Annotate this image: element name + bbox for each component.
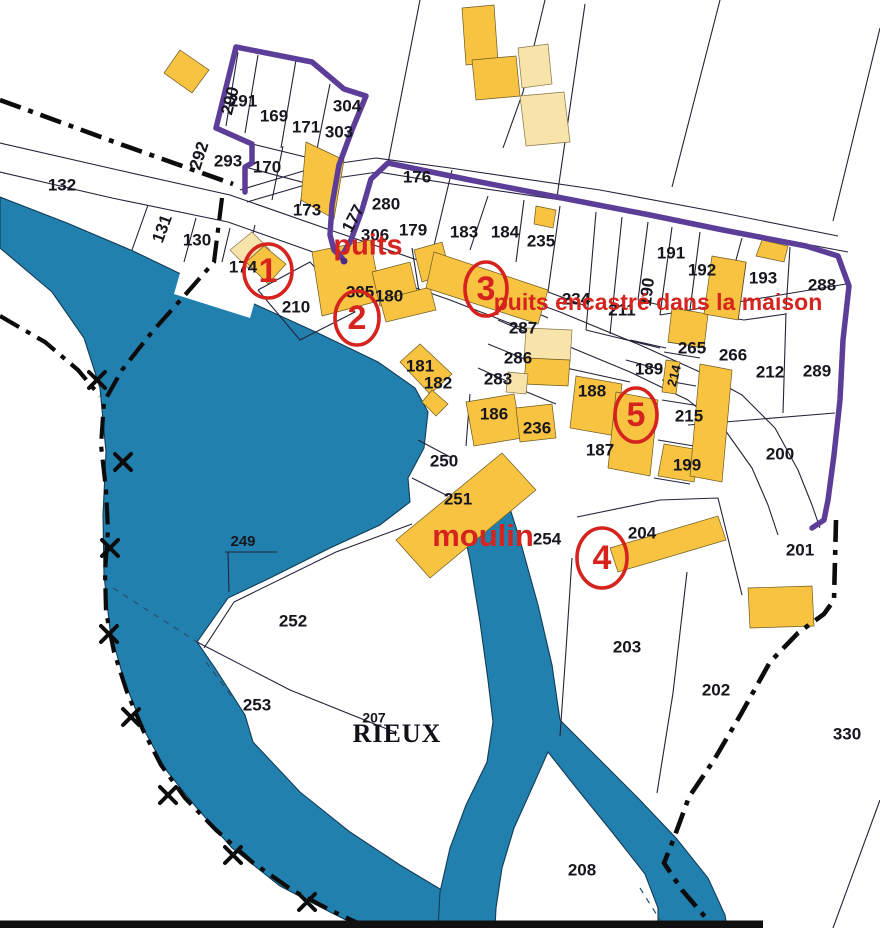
parcel-label-184: 184 — [491, 222, 520, 241]
map-canvas: 1321311301742902911691713043032922931701… — [0, 0, 880, 928]
parcel-label-130: 130 — [183, 230, 211, 249]
annotation-puits: puits — [333, 230, 402, 262]
parcel-label-254: 254 — [533, 529, 562, 548]
place-name-label: RIEUX — [353, 719, 442, 748]
annotation-moulin: moulin — [432, 518, 534, 553]
parcel-label-173: 173 — [293, 200, 321, 219]
parcel-label-199: 199 — [673, 455, 701, 474]
parcel-label-303: 303 — [325, 122, 353, 141]
annotation-puits-encastre: puits encastré dans la maison — [494, 289, 823, 315]
marker-number-2: 2 — [348, 299, 367, 337]
parcel-label-266: 266 — [719, 345, 747, 364]
building-pale — [518, 44, 552, 88]
marker-number-5: 5 — [627, 396, 646, 434]
parcel-label-210: 210 — [282, 297, 310, 316]
building — [472, 56, 520, 100]
parcel-label-201: 201 — [786, 540, 814, 559]
parcel-label-132: 132 — [48, 175, 76, 194]
parcel-label-182: 182 — [424, 373, 452, 392]
parcel-label-180: 180 — [375, 286, 403, 305]
parcel-label-179: 179 — [399, 220, 427, 239]
parcel-label-203: 203 — [613, 637, 641, 656]
parcel-label-131: 131 — [148, 212, 176, 245]
building-pale — [520, 92, 570, 146]
parcel-label-236: 236 — [523, 418, 551, 437]
parcel-label-280: 280 — [372, 194, 400, 213]
building — [164, 50, 209, 93]
parcel-label-235: 235 — [527, 231, 555, 250]
parcel-label-169: 169 — [260, 106, 288, 125]
parcel-label-330: 330 — [833, 724, 861, 743]
parcel-label-293: 293 — [214, 151, 242, 170]
parcel-label-187: 187 — [586, 440, 614, 459]
parcel-label-202: 202 — [702, 680, 730, 699]
parcel-label-265: 265 — [678, 338, 706, 357]
marker-number-1: 1 — [259, 252, 278, 290]
cadastral-map: 1321311301742902911691713043032922931701… — [0, 0, 880, 928]
marker-number-3: 3 — [477, 270, 496, 308]
marker-number-4: 4 — [593, 539, 612, 577]
parcel-label-176: 176 — [403, 167, 431, 186]
parcel-label-251: 251 — [444, 489, 472, 508]
parcel-label-287: 287 — [509, 318, 537, 337]
parcel-label-215: 215 — [675, 406, 703, 425]
parcel-label-252: 252 — [279, 611, 307, 630]
parcel-label-186: 186 — [480, 404, 508, 423]
parcel-label-249: 249 — [230, 533, 255, 550]
parcel-label-171: 171 — [292, 117, 320, 136]
parcel-label-191: 191 — [657, 243, 685, 262]
parcel-label-189: 189 — [635, 359, 663, 378]
parcel-label-286: 286 — [504, 348, 532, 367]
building — [534, 206, 556, 228]
parcel-label-292: 292 — [186, 139, 213, 172]
parcel-label-289: 289 — [803, 361, 831, 380]
bottom-border-bar — [0, 921, 763, 928]
parcel-label-283: 283 — [484, 369, 512, 388]
parcel-label-192: 192 — [688, 260, 716, 279]
parcel-label-208: 208 — [568, 860, 596, 879]
parcel-label-212: 212 — [756, 362, 784, 381]
building — [462, 5, 498, 65]
parcel-label-188: 188 — [578, 381, 606, 400]
parcel-label-253: 253 — [243, 695, 271, 714]
parcel-label-204: 204 — [628, 523, 657, 542]
parcel-label-193: 193 — [749, 268, 777, 287]
parcel-label-183: 183 — [450, 222, 478, 241]
building — [748, 586, 814, 628]
parcel-label-200: 200 — [766, 444, 794, 463]
parcel-label-304: 304 — [333, 96, 362, 115]
parcel-label-291: 291 — [229, 91, 257, 110]
parcel-label-250: 250 — [430, 451, 458, 470]
parcel-label-170: 170 — [253, 157, 281, 176]
